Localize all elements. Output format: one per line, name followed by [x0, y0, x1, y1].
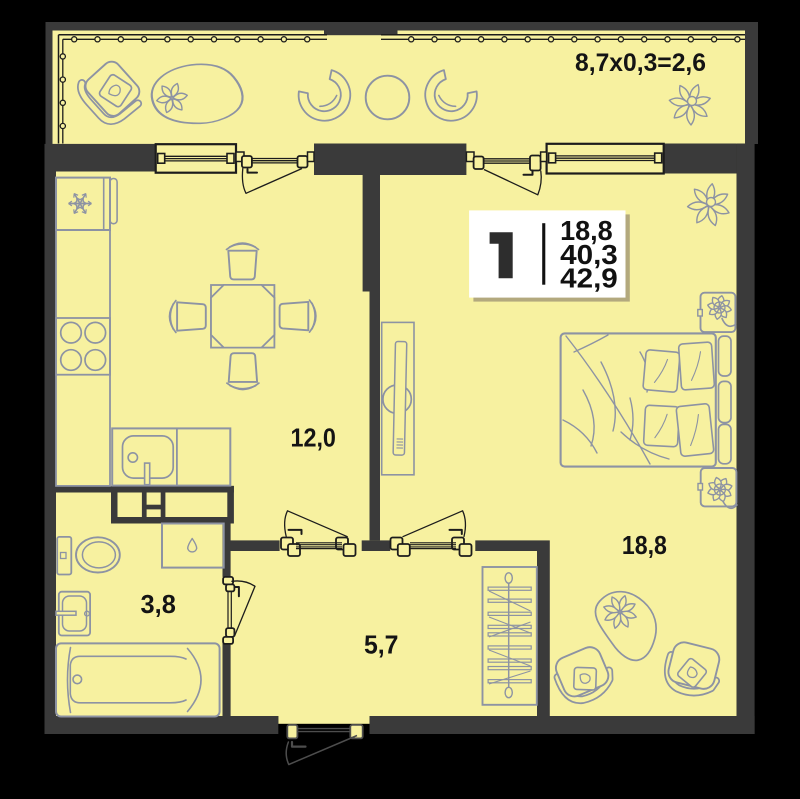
svg-text:18,8: 18,8 [622, 530, 667, 560]
svg-text:5,7: 5,7 [364, 630, 399, 660]
svg-text:3,8: 3,8 [141, 589, 176, 619]
svg-text:42,9: 42,9 [560, 262, 618, 293]
svg-text:8,7x0,3=2,6: 8,7x0,3=2,6 [575, 49, 706, 77]
svg-text:12,0: 12,0 [290, 423, 336, 453]
